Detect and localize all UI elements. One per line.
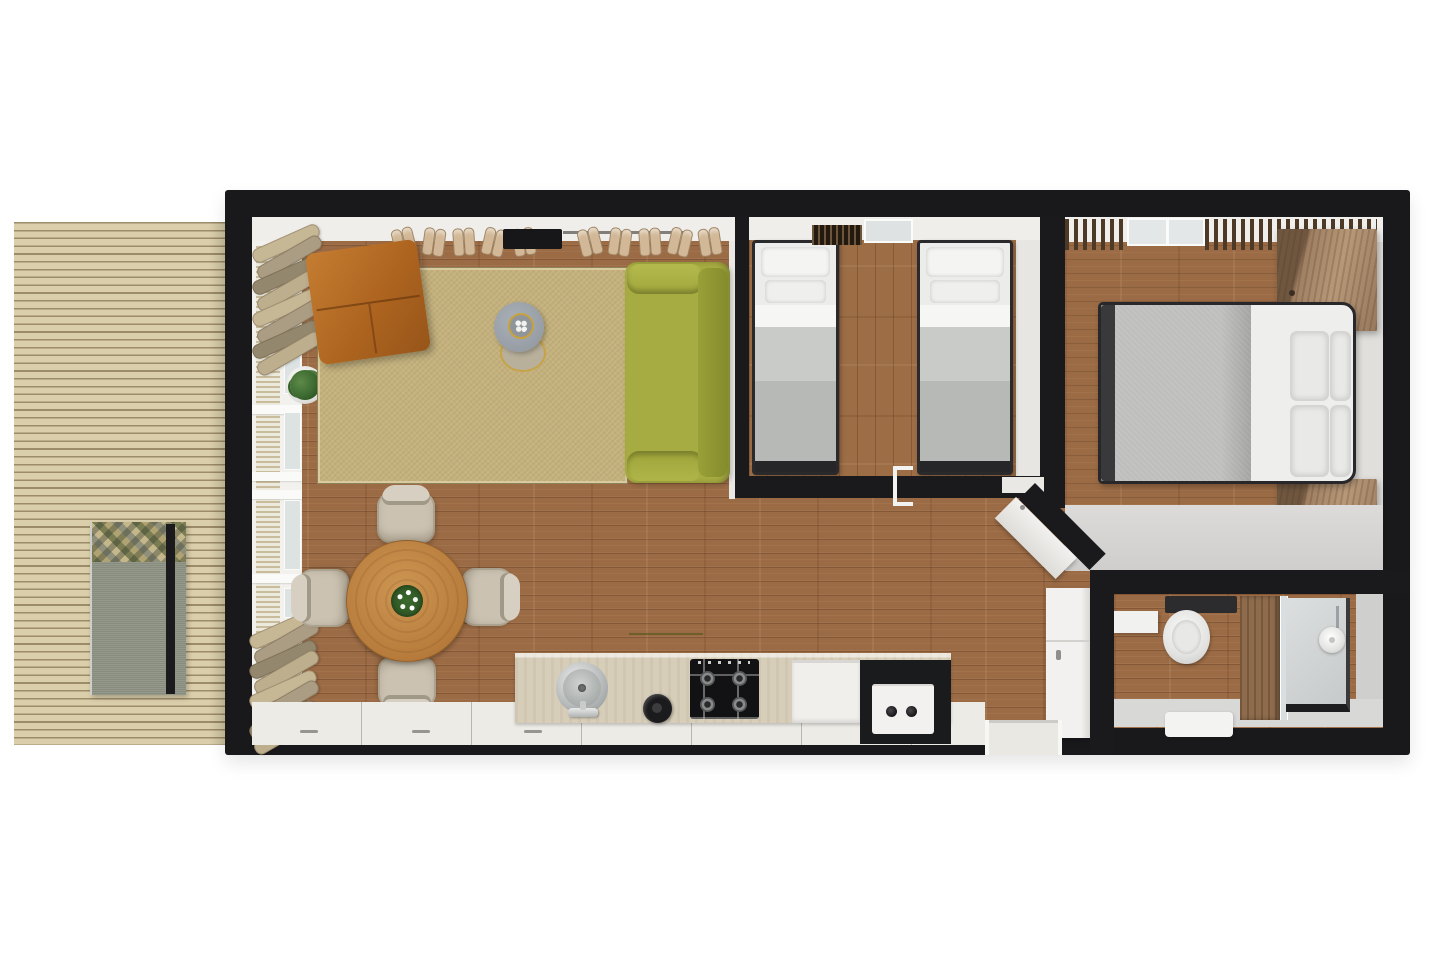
sink-drain <box>578 684 586 692</box>
sofa-seat-seam <box>629 633 703 635</box>
slipper-pair <box>576 226 603 258</box>
bath-mat <box>1165 712 1233 737</box>
vanity-shelf <box>1114 611 1158 633</box>
window-mullion <box>252 490 302 499</box>
burner <box>732 671 747 686</box>
plant-leaves <box>290 370 320 400</box>
shoe-row-right <box>579 228 720 258</box>
twin-door-mark <box>893 466 913 506</box>
lounger-rail <box>166 524 175 694</box>
door-diagonal-handle <box>1020 505 1025 510</box>
slipper-pair <box>607 227 632 258</box>
toilet-bowl <box>1163 610 1210 664</box>
slipper-pair <box>666 226 693 258</box>
master-bed <box>1098 302 1356 484</box>
pillow <box>930 280 1000 303</box>
toilet-cistern <box>1165 596 1237 613</box>
slipper-pair <box>421 227 446 258</box>
master-footboard <box>1101 305 1115 481</box>
master-pillow-4 <box>1330 405 1351 477</box>
twin-right-face <box>1016 240 1040 476</box>
master-blanket <box>1115 305 1251 481</box>
hob-controls <box>698 661 750 664</box>
window-pane <box>284 500 301 570</box>
deck <box>14 222 225 745</box>
hob <box>690 659 759 719</box>
wall-master-left <box>1040 217 1065 508</box>
pillow <box>761 247 830 277</box>
dishwasher <box>792 660 860 723</box>
window-pane <box>284 412 301 470</box>
master-bottom-face <box>1065 505 1383 571</box>
burner <box>732 697 747 712</box>
coffee-tray <box>508 313 534 339</box>
sofa-armrest-top <box>627 264 703 294</box>
dining-chair-left <box>295 569 349 627</box>
door-hall <box>1046 588 1090 738</box>
wall-twin-left <box>735 217 749 498</box>
wall-bath-left <box>1090 570 1114 755</box>
dining-table <box>346 540 468 662</box>
sofa-backrest <box>698 268 728 477</box>
cabinet-handle <box>412 730 430 733</box>
master-pillow-3 <box>1290 405 1329 477</box>
burner <box>700 671 715 686</box>
wall-twin-bottom <box>735 476 1045 498</box>
master-window <box>1127 218 1205 246</box>
pillow <box>926 247 1004 277</box>
door-hall-handle <box>1056 650 1061 660</box>
twin-radiator <box>812 225 862 245</box>
faucet <box>568 708 598 717</box>
washer-knob-2 <box>906 706 917 717</box>
twin-bed-left <box>752 240 839 475</box>
slipper-pair <box>697 227 722 258</box>
tray-cups <box>514 319 528 333</box>
shower-cabinet <box>1240 596 1280 720</box>
master-canopy-left <box>1065 219 1127 250</box>
shower-head <box>1319 627 1345 653</box>
washing-machine <box>872 684 934 734</box>
slipper-pair <box>638 227 661 256</box>
window-mullion <box>252 472 302 481</box>
master-pillow-2 <box>1330 331 1351 401</box>
coffee-table <box>494 302 544 352</box>
leather-ottoman <box>305 239 431 365</box>
cabinet-handle <box>524 730 542 733</box>
shower <box>1240 596 1355 720</box>
pillow <box>765 280 826 303</box>
sofa <box>625 262 730 483</box>
black-module <box>860 660 951 744</box>
kettle <box>643 694 672 723</box>
burner <box>700 697 715 712</box>
wall-bath-top <box>1090 570 1410 594</box>
twin-bed-right <box>917 240 1013 475</box>
floor-plan-canvas <box>0 0 1440 960</box>
washer-knob-1 <box>886 706 897 717</box>
flower-centerpiece <box>391 585 423 617</box>
sofa-armrest-bottom <box>627 451 703 481</box>
cabinet-handle <box>300 730 318 733</box>
dining-chair-top <box>377 489 435 543</box>
master-pillow-1 <box>1290 331 1329 401</box>
shower-tray <box>1286 598 1350 712</box>
slipper-pair <box>452 227 475 256</box>
dining-chair-right <box>462 568 516 626</box>
entry-threshold <box>985 720 1062 755</box>
twin-window <box>864 219 913 243</box>
tv-console <box>503 229 562 249</box>
shower-arm <box>1336 606 1339 628</box>
